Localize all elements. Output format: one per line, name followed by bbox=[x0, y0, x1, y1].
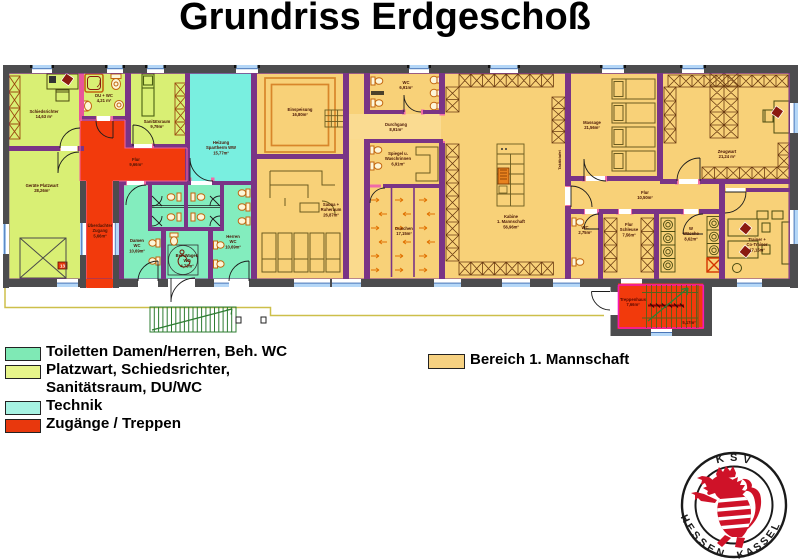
svg-text:Taktiktafel: Taktiktafel bbox=[557, 150, 562, 170]
svg-text:Duschen17,15m²: Duschen17,15m² bbox=[395, 226, 413, 236]
svg-text:Massage21,56m²: Massage21,56m² bbox=[583, 120, 601, 130]
svg-text:Trainer +Co-Trainer17,15m²: Trainer +Co-Trainer17,15m² bbox=[747, 237, 768, 252]
svg-text:Zeugwart21,24 m²: Zeugwart21,24 m² bbox=[718, 149, 737, 159]
svg-text:S: S bbox=[730, 452, 737, 464]
svg-text:13: 13 bbox=[60, 264, 66, 269]
svg-text:5,17m²: 5,17m² bbox=[682, 320, 696, 325]
svg-text:Sauna +Ruheraum26,87m²: Sauna +Ruheraum26,87m² bbox=[321, 202, 342, 217]
svg-text:DU + WC4,21 m²: DU + WC4,21 m² bbox=[95, 93, 113, 103]
